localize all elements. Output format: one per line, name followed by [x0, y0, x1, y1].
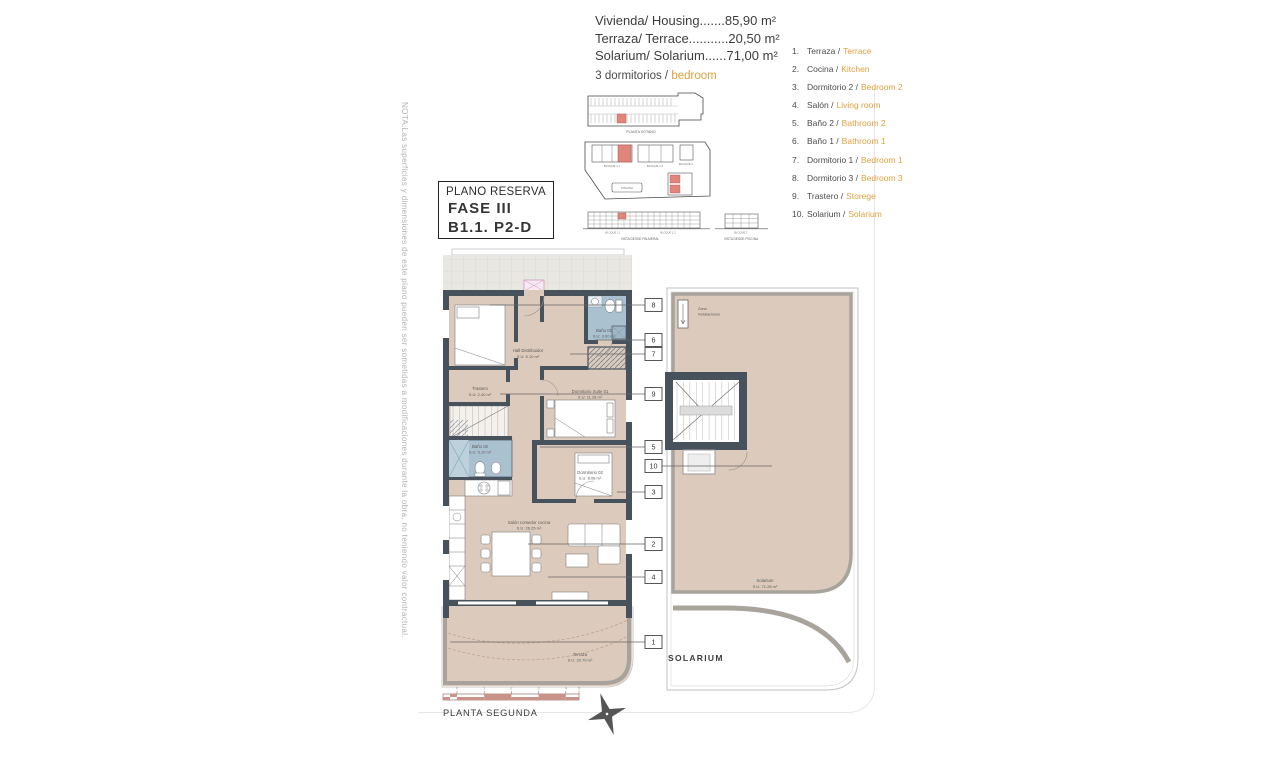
room-legend: 1.Terraza /Terrace 2.Cocina /Kitchen 3.D…: [792, 47, 903, 228]
elev-caption-right: VISTA DESDE PISCINA: [724, 237, 759, 241]
floor-label: PLANTA SEGUNDA: [443, 708, 538, 718]
svg-text:S.U: 71.28 m²: S.U: 71.28 m²: [753, 584, 778, 589]
solarium-room-label: Solarium: [757, 578, 774, 583]
solarium-caption: SOLARIUM: [668, 653, 724, 663]
svg-text:S.U: 5.10 m²: S.U: 5.10 m²: [517, 354, 540, 359]
elev-caption-left: VISTA DESDE PALMERAL: [621, 237, 660, 241]
svg-text:3: 3: [538, 687, 540, 691]
elevations: BLOQUE 1.1 BLOQUE 1.2 VISTA DESDE PALMER…: [583, 212, 768, 241]
site-key-diagrams: PLANTA SÓTANO PISCINA BLOQUE 1.1 BLOQUE …: [583, 92, 778, 247]
area-summary: Vivienda/ Housing.......85,90 m² Terraza…: [595, 12, 780, 65]
living-label: Salón comedor cocina: [508, 520, 551, 525]
masterplan: PISCINA BLOQUE 1.1 BLOQUE 1.2 BLOQUE 2: [585, 142, 710, 199]
legend-item: 6.Baño 1 /Bathroom 1: [792, 137, 903, 146]
entrance-marker: [524, 280, 544, 291]
svg-text:S.U: 11.28 m²: S.U: 11.28 m²: [578, 395, 603, 400]
svg-text:7: 7: [652, 350, 656, 359]
callout-boxes: 8 6 7 9 5 10 3 2 4 1: [645, 299, 662, 649]
svg-text:S.U: 26.25 m²: S.U: 26.25 m²: [517, 526, 542, 531]
svg-text:9: 9: [652, 390, 656, 399]
svg-text:1: 1: [652, 638, 656, 647]
north-compass-icon: [581, 687, 633, 738]
svg-text:S.U: 2.40 m²: S.U: 2.40 m²: [469, 392, 492, 397]
garage-plan: PLANTA SÓTANO: [588, 93, 703, 134]
legend-item: 9.Trastero /Storege: [792, 192, 903, 201]
scale-bar: 0 1 2 3 4 5 PLANTA SEGUNDA: [443, 687, 580, 719]
block2-label: BLOQUE 2: [679, 162, 693, 166]
gallery-parapet: [452, 249, 624, 255]
summary-housing: Vivienda/ Housing.......85,90 m²: [595, 12, 780, 30]
summary-terrace: Terraza/ Terrace...........20,50 m²: [595, 30, 780, 48]
bathroom1-label: Baño 01: [596, 328, 613, 333]
main-floorplan-drawing: Hall Distribuidor S.U: 5.10 m² Trastero …: [440, 248, 870, 738]
svg-text:3: 3: [652, 488, 656, 497]
suite-wardrobe: [588, 347, 626, 369]
bedroom3-bed: [455, 305, 505, 365]
svg-text:S.U: 5.10 m²: S.U: 5.10 m²: [469, 450, 492, 455]
legend-item: 4.Salón /Living room: [792, 101, 903, 110]
highlighted-unit-block1: [618, 145, 631, 162]
svg-text:Zona: Zona: [698, 307, 708, 311]
unit-code-label: B1.1. P2-D: [448, 219, 553, 236]
dining-table: [481, 532, 541, 576]
apartment-stairs: [450, 406, 508, 438]
reservation-plan-box: PLANO RESERVA FASE III B1.1. P2-D: [438, 181, 554, 239]
svg-text:Instalaciones: Instalaciones: [698, 313, 720, 317]
legend-item: 8.Dormitorio 3 /Bedroom 3: [792, 174, 903, 183]
elev-block11-label: BLOQUE 1.1: [605, 231, 621, 235]
plano-reserva-label: PLANO RESERVA: [439, 186, 553, 198]
trastero-label: Trastero: [472, 386, 488, 391]
legend-item: 2.Cocina /Kitchen: [792, 65, 903, 74]
legend-item: 1.Terraza /Terrace: [792, 47, 903, 56]
svg-text:4: 4: [565, 687, 567, 691]
garage-caption: PLANTA SÓTANO: [626, 129, 656, 134]
legend-item: 5.Baño 2 /Bathroom 2: [792, 119, 903, 128]
svg-text:S.U: 8.08 m²: S.U: 8.08 m²: [579, 476, 602, 481]
legend-item: 7.Dormitorio 1 /Bedroom 1: [792, 156, 903, 165]
suite-bed: [547, 400, 615, 437]
hall-label: Hall Distribuidor: [513, 348, 544, 353]
bedrooms-es: 3 dormitorios /: [595, 70, 668, 82]
pool-label: PISCINA: [621, 186, 633, 190]
svg-text:S.U: 3.60 m²: S.U: 3.60 m²: [593, 334, 616, 339]
bedrooms-en: bedroom: [671, 70, 716, 82]
legend-item: 10.Solarium /Solarium: [792, 210, 903, 219]
fase-label: FASE III: [448, 200, 553, 217]
highlighted-unit-block2: [670, 175, 680, 183]
svg-text:5: 5: [652, 443, 656, 452]
svg-text:0: 0: [456, 687, 458, 691]
elev-block2-label: BLOQUE 2: [735, 231, 749, 235]
svg-text:4: 4: [652, 573, 656, 582]
svg-text:2: 2: [510, 687, 512, 691]
legend-item: 3.Dormitorio 2 /Bedroom 2: [792, 83, 903, 92]
svg-text:S.U: 20.70 m²: S.U: 20.70 m²: [568, 658, 593, 663]
bedroom2-label: Dormitorio 02: [577, 470, 603, 475]
bathroom2-label: Baño 02: [472, 444, 489, 449]
terrace-label: Terraza: [573, 652, 588, 657]
bedrooms-line: 3 dormitorios / bedroom: [595, 70, 717, 82]
highlighted-garage-space: [617, 114, 626, 123]
solarium-plan: Zona Instalaciones Solarium S.U: 71.28 m…: [665, 288, 858, 690]
elev-block12-label: BLOQUE 1.2: [660, 231, 676, 235]
svg-text:1: 1: [483, 687, 485, 691]
terrace-floor: [443, 606, 632, 686]
block12-label: BLOQUE 1.2: [647, 164, 664, 168]
svg-text:5: 5: [578, 687, 580, 691]
svg-text:8: 8: [652, 301, 656, 310]
svg-text:2: 2: [652, 540, 656, 549]
summary-solarium: Solarium/ Solarium......71,00 m²: [595, 47, 780, 65]
highlighted-unit-elevation: [618, 213, 626, 219]
apartment-plan: Hall Distribuidor S.U: 5.10 m² Trastero …: [442, 249, 633, 687]
svg-text:10: 10: [650, 462, 658, 471]
block11-label: BLOQUE 1.1: [604, 164, 621, 168]
contract-note: NOTA:Las superficies y dimensiones de es…: [400, 102, 409, 638]
svg-text:6: 6: [652, 336, 656, 345]
suite-label: Dormitorio Suite 01: [572, 389, 609, 394]
floorplan-sheet: NOTA:Las superficies y dimensiones de es…: [0, 0, 1280, 768]
